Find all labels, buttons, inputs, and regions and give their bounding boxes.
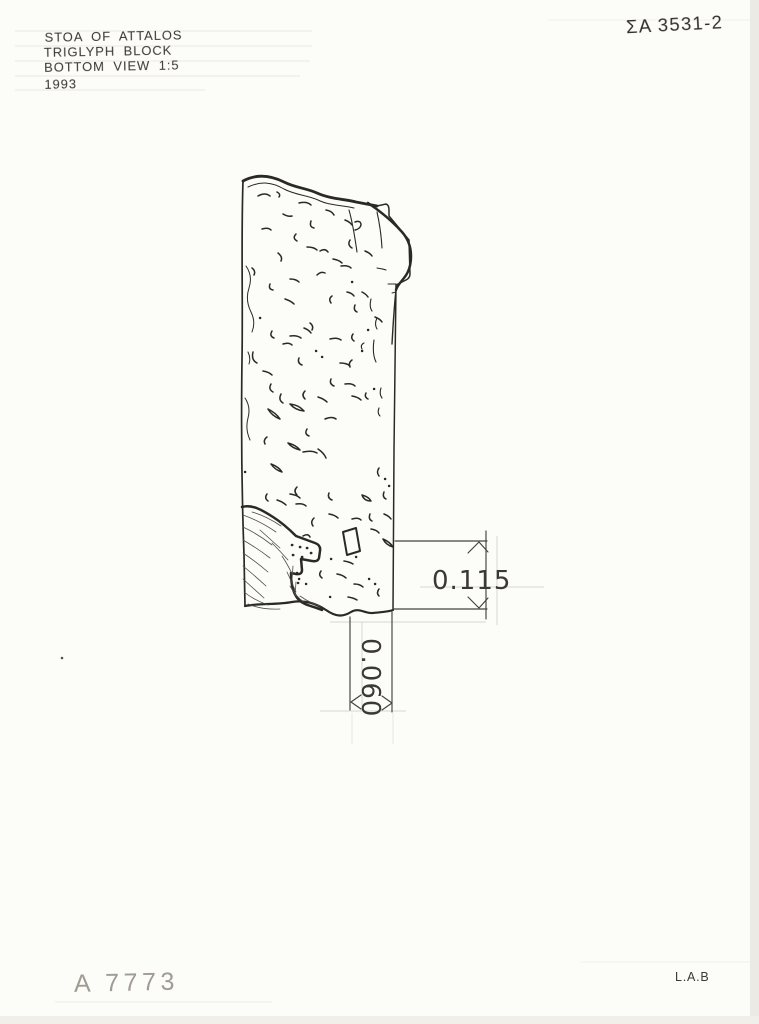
dimension-vertical-label: 0.060 bbox=[355, 638, 385, 717]
inventory-number: A 7773 bbox=[74, 968, 179, 998]
title-line-3: BOTTOM VIEW 1:5 bbox=[44, 57, 180, 74]
dimension-horizontal-label: 0.115 bbox=[432, 566, 511, 596]
drawing-canvas: STOA OF ATTALOS TRIGLYPH BLOCK BOTTOM VI… bbox=[0, 0, 759, 1024]
draftsman-initials: L.A.B bbox=[675, 970, 710, 984]
paper-background bbox=[0, 0, 759, 1024]
paper-speck bbox=[61, 657, 64, 660]
scanned-drawing-page: STOA OF ATTALOS TRIGLYPH BLOCK BOTTOM VI… bbox=[0, 0, 759, 1024]
title-line-4: 1993 bbox=[44, 76, 77, 92]
